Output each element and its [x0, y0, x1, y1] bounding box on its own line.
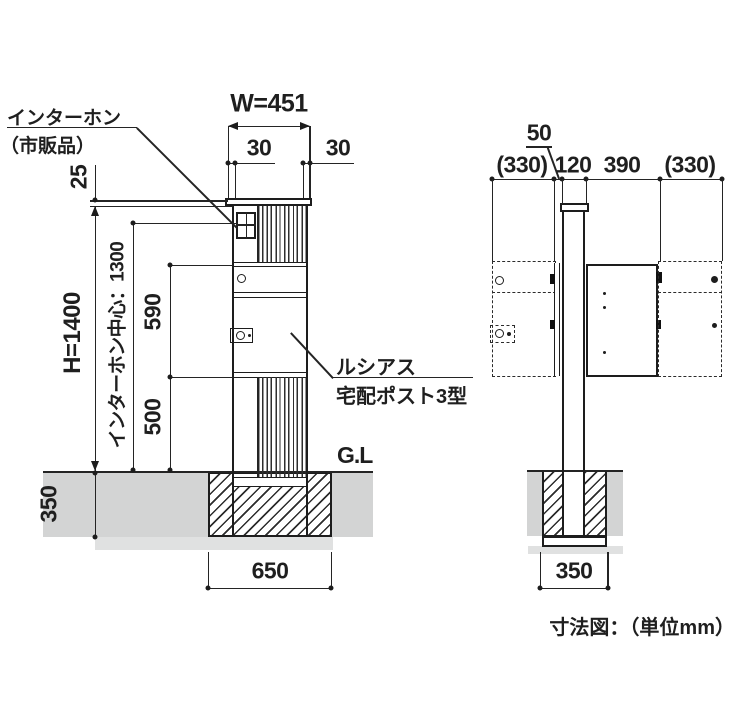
ext-side-2 — [554, 179, 556, 261]
dim-dot — [131, 221, 136, 226]
door-lock-cylinder — [236, 331, 245, 340]
dim-line-width — [228, 126, 310, 128]
footing-side-baseplate — [542, 536, 607, 547]
dim-line-590-500 — [170, 265, 172, 471]
dim-label-50: 50 — [527, 120, 552, 147]
dim-label-embed: 350 — [36, 486, 63, 523]
dim-label-footing-side: 350 — [556, 558, 593, 585]
post-cap-front — [225, 198, 312, 206]
rail-upper — [233, 262, 307, 267]
lock-dot-side — [507, 332, 511, 336]
substrate-strip-front — [95, 537, 333, 550]
dim-dot — [606, 586, 611, 591]
ext-cap-bottom — [90, 206, 233, 208]
ext-footing-left — [208, 552, 210, 589]
ext-side-6 — [722, 179, 724, 261]
conn-590-top — [170, 265, 233, 267]
hinge-tab-upper-left — [550, 274, 555, 284]
dim-line-intercom-center — [133, 223, 135, 471]
ext-side-1 — [492, 179, 494, 261]
dim-line-height — [95, 206, 97, 471]
ext-side-5 — [660, 179, 662, 261]
ext-side-3 — [562, 179, 564, 204]
dim-dot — [93, 471, 98, 476]
ext-footing-side-right — [607, 552, 609, 589]
dim-label-500: 500 — [140, 399, 167, 436]
dim-label-overhang-right: 30 — [326, 135, 351, 162]
intercom-window-mullion — [246, 212, 248, 239]
dim-label-330-left: (330) — [496, 152, 547, 179]
dimension-drawing: W=451 30 30 25 H=1400 インターホン中心：1300 590 … — [0, 0, 740, 726]
hinge-tab-lower-left — [550, 320, 555, 329]
lock-cylinder-side — [495, 329, 504, 338]
conn-intercom-center — [133, 223, 237, 225]
dim-label-footing-front: 650 — [252, 558, 289, 585]
door-swing-left-divider — [492, 292, 556, 293]
ext-footing-side-left — [540, 552, 542, 589]
substrate-strip-side — [528, 546, 623, 554]
box-screw-3 — [603, 351, 606, 354]
ext-footing-right — [331, 552, 333, 589]
dim-line-embed — [95, 472, 97, 537]
door-swing-right-divider — [658, 292, 722, 293]
emblem-circle — [237, 274, 246, 283]
dim-arrow-width-left — [228, 122, 238, 130]
knob-upper-right — [711, 276, 718, 283]
post-cap-side — [560, 203, 589, 212]
dim-label-120: 120 — [555, 152, 592, 179]
dim-line-footing-side — [540, 588, 608, 590]
dim-label-390: 390 — [604, 152, 641, 179]
rail-middle — [233, 292, 307, 298]
callout-product-line2: 宅配ポスト3型 — [336, 380, 467, 409]
ground-side-left — [527, 470, 542, 536]
dim-line-footing-front — [208, 588, 332, 590]
dim-dot — [308, 161, 313, 166]
dim-label-intercom-center: インターホン中心：1300 — [103, 242, 130, 449]
upper-slats — [258, 206, 307, 263]
dim-dot — [93, 198, 98, 203]
dim-label-height: H=1400 — [59, 292, 87, 374]
dim-label-cap25: 25 — [66, 165, 93, 190]
callout-intercom-leader — [136, 127, 237, 228]
drawing-caption: 寸法図：（単位mm） — [545, 611, 735, 640]
dim-dot — [93, 535, 98, 540]
ext-side-4 — [586, 179, 588, 204]
dim-dot — [168, 375, 173, 380]
post-side — [562, 211, 585, 537]
ext-body-left — [235, 163, 237, 198]
dim-dot — [168, 468, 173, 473]
ext-cap-top — [90, 200, 228, 202]
upper-slats-left-edge — [257, 206, 259, 263]
dim-arrow-height-bottom — [91, 461, 99, 471]
post-right-edge — [306, 206, 308, 537]
ground-left — [43, 472, 208, 537]
dim-dot — [538, 586, 543, 591]
dim-label-width: W=451 — [230, 90, 307, 119]
ext-body-right — [303, 163, 305, 198]
post-left-edge — [232, 206, 234, 537]
conn-590-bottom — [170, 377, 233, 379]
ground-line-label: G.L — [337, 442, 372, 469]
emblem-circle-side — [495, 276, 504, 285]
door-lock-dot — [248, 334, 251, 337]
dim-label-330-right: (330) — [664, 152, 715, 179]
delivery-box-side — [586, 264, 658, 377]
lower-slats-left-edge — [257, 377, 259, 478]
knob-lower-right — [712, 323, 717, 328]
callout-product-line1: ルシアス — [336, 351, 416, 380]
dim-line-cap25 — [95, 165, 97, 201]
lower-slats — [258, 377, 307, 478]
dim-label-overhang-left: 30 — [247, 135, 272, 162]
dim-dot — [226, 161, 231, 166]
ground-side-right — [607, 470, 623, 536]
dim-dot — [329, 586, 334, 591]
dim-dot — [206, 586, 211, 591]
dim-label-590: 590 — [140, 294, 167, 331]
intercom-window-transom — [236, 224, 256, 226]
dim-dot — [131, 468, 136, 473]
dim-line-side-top — [492, 179, 722, 181]
callout-intercom-line2: （市販品） — [0, 131, 95, 158]
ground-right-of-footing — [332, 472, 373, 537]
dim-dot — [168, 263, 173, 268]
dim-arrow-height-top — [91, 206, 99, 216]
rail-bottom — [233, 477, 307, 487]
callout-intercom-underline — [7, 127, 137, 129]
box-screw-2 — [603, 306, 606, 309]
box-screw-1 — [603, 292, 606, 295]
